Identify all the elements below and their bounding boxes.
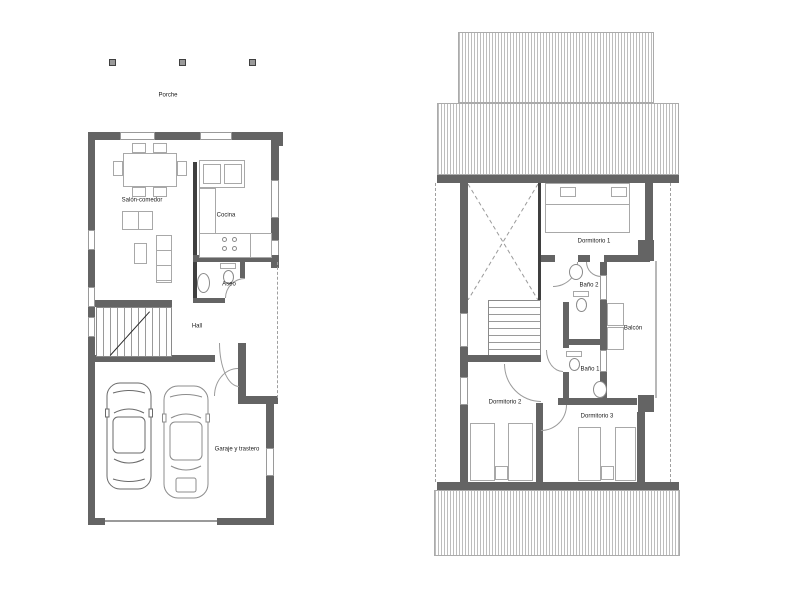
roof-edge-dashed-line [435, 183, 436, 482]
sofa [122, 211, 153, 230]
wall [193, 298, 225, 303]
toilet-bowl [576, 298, 587, 312]
washbasin [569, 264, 583, 280]
pillow [560, 187, 576, 197]
wall [460, 183, 468, 313]
shelving-unit [156, 235, 172, 283]
dining-chair [113, 161, 123, 176]
room-label-salon-comedor: Salón-comedor [122, 198, 163, 205]
roof-edge-dashed-line [277, 262, 278, 398]
bedroom2-door-arc [504, 364, 541, 402]
floor-plan-canvas: Porche [0, 0, 800, 600]
void-partition-wall [538, 183, 541, 303]
wall [563, 372, 569, 400]
room-label-dormitorio2: Dormitorio 2 [489, 400, 522, 407]
room-label-bano2: Baño 2 [579, 283, 598, 290]
wall [637, 412, 645, 482]
window [88, 287, 95, 307]
wall [88, 518, 105, 525]
window [200, 132, 232, 140]
window [120, 132, 155, 140]
window [460, 377, 468, 405]
wall [437, 482, 679, 490]
window [266, 448, 274, 476]
wall [600, 262, 607, 275]
porch-column [179, 59, 186, 66]
porch-column [249, 59, 256, 66]
wall [238, 396, 278, 404]
wall [88, 250, 95, 287]
kitchen-counter [199, 188, 216, 234]
washbasin [593, 381, 607, 398]
wall [232, 132, 275, 140]
room-label-cocina: Cocina [217, 213, 236, 220]
kitchen-sink [203, 164, 221, 184]
wall [460, 347, 468, 377]
nightstand [601, 466, 614, 480]
roof-edge-dashed-line [670, 183, 671, 482]
garage-door-arc [214, 368, 238, 396]
room-label-porche: Porche [158, 93, 177, 100]
bath1-door-arc [546, 350, 563, 372]
window [460, 313, 468, 347]
balcony-corner-post [638, 395, 654, 412]
coffee-table [134, 243, 147, 264]
wall [88, 307, 95, 317]
wall [600, 300, 607, 350]
wall [95, 300, 172, 307]
wall [88, 337, 95, 525]
staircase [488, 300, 541, 357]
roof-hatch [437, 103, 679, 175]
wall [155, 132, 200, 140]
roof-hatch [434, 490, 680, 556]
single-bed [508, 423, 533, 481]
wall [558, 398, 637, 405]
single-bed [470, 423, 495, 481]
void-x-marker [468, 184, 538, 300]
dining-chair [132, 143, 146, 153]
cooktop-burner [222, 237, 227, 242]
cooktop-burner [232, 246, 237, 251]
window [600, 275, 607, 300]
wall [217, 518, 274, 525]
roof-hatch [458, 32, 654, 103]
bedroom3-door-arc [541, 405, 567, 431]
wall [541, 255, 555, 262]
ground-floor-plan: Porche [0, 0, 400, 600]
car-top-view [162, 382, 210, 502]
balcony-railing [655, 261, 657, 398]
wall [266, 476, 274, 518]
porch-column [109, 59, 116, 66]
toilet-bowl [569, 358, 580, 371]
single-bed [578, 427, 601, 481]
wall [604, 255, 650, 262]
cooktop-burner [232, 237, 237, 242]
room-label-dormitorio1: Dormitorio 1 [578, 239, 611, 246]
room-label-aseo: Aseo [222, 282, 236, 289]
pillow [611, 187, 627, 197]
toilet-tank [566, 351, 582, 357]
wall [645, 183, 653, 240]
wall [88, 132, 95, 230]
window [600, 350, 607, 372]
room-label-bano1: Baño 1 [580, 367, 599, 374]
staircase [96, 307, 172, 357]
wall [437, 175, 679, 183]
upper-floor-plan: Dormitorio 1 Baño 2 Balcón Baño 1 Dormit… [400, 0, 800, 600]
wall [240, 262, 245, 278]
nightstand [495, 466, 508, 480]
room-label-dormitorio3: Dormitorio 3 [581, 414, 614, 421]
dining-chair [177, 161, 187, 176]
dining-chair [132, 187, 146, 197]
cooktop-burner [222, 246, 227, 251]
dining-chair [153, 187, 167, 197]
window [271, 180, 279, 218]
single-bed [615, 427, 636, 481]
window [88, 317, 95, 337]
car-top-view [105, 379, 153, 493]
balcony-cabinet [607, 327, 624, 350]
garage-door-line [105, 520, 217, 522]
balcony-cabinet [607, 303, 624, 326]
wall [460, 405, 468, 482]
wall [266, 404, 274, 448]
room-label-balcon: Balcón [624, 326, 642, 333]
dining-chair [153, 143, 167, 153]
room-label-garaje: Garaje y trastero [215, 447, 260, 454]
wall [460, 355, 541, 362]
kitchen-sink [224, 164, 242, 184]
room-label-hall: Hall [192, 324, 202, 331]
window [88, 230, 95, 250]
wall [238, 343, 246, 400]
toilet-tank [573, 291, 589, 297]
wall [271, 132, 279, 180]
wall [578, 255, 590, 262]
bath2-door-arc [586, 262, 601, 277]
dining-table [123, 153, 177, 187]
wall [271, 218, 279, 240]
toilet-tank [220, 263, 236, 269]
washbasin [197, 273, 210, 293]
